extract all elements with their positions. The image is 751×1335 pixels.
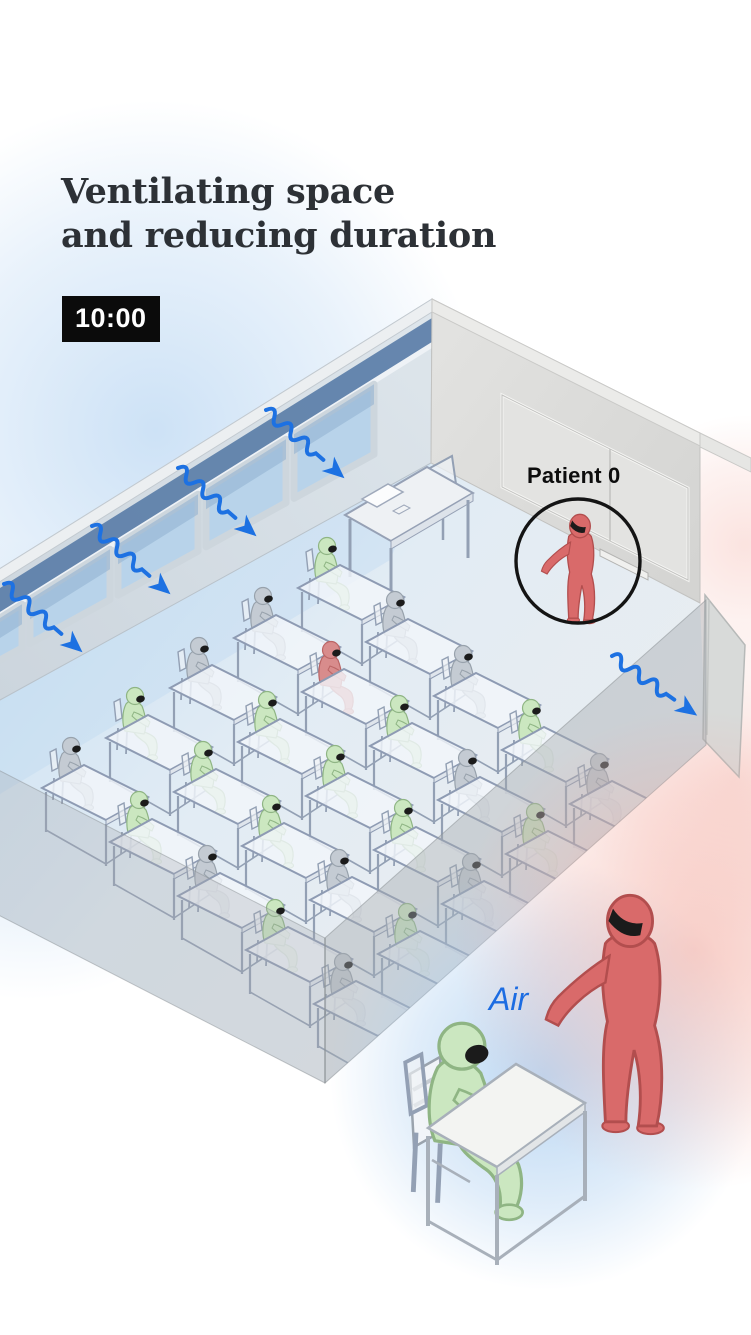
- chair: [442, 657, 450, 679]
- patient-zero-label: Patient 0: [527, 463, 621, 489]
- chair: [246, 703, 254, 725]
- chair: [50, 749, 58, 771]
- chair: [510, 711, 518, 733]
- page-title: Ventilating space and reducing duration: [61, 170, 541, 258]
- air-label: Air: [489, 981, 528, 1018]
- chair: [310, 653, 318, 675]
- chair: [182, 753, 190, 775]
- time-badge: 10:00: [62, 296, 160, 342]
- chair: [382, 811, 390, 833]
- chair: [446, 761, 454, 783]
- chair: [242, 599, 250, 621]
- chair: [318, 861, 326, 883]
- chair: [314, 757, 322, 779]
- chair: [250, 807, 258, 829]
- title-line-2: and reducing duration: [61, 214, 541, 258]
- chair: [178, 649, 186, 671]
- infographic-page: Ventilating space and reducing duration …: [0, 0, 751, 1335]
- chair: [118, 803, 126, 825]
- chair: [405, 1054, 427, 1113]
- chair: [378, 707, 386, 729]
- chair: [374, 603, 382, 625]
- chair: [306, 549, 314, 571]
- title-line-1: Ventilating space: [61, 170, 541, 214]
- chair: [114, 699, 122, 721]
